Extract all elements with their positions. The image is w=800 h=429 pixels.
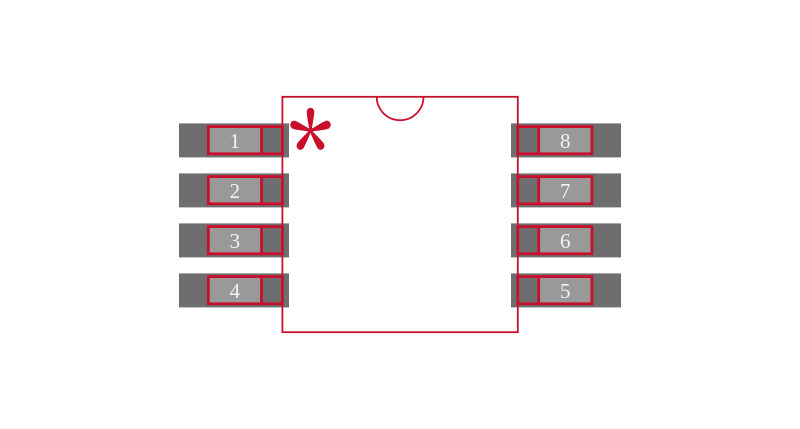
svg-text:1: 1	[230, 129, 241, 153]
svg-text:2: 2	[230, 179, 241, 203]
svg-text:3: 3	[230, 229, 241, 253]
svg-text:8: 8	[560, 129, 571, 153]
svg-text:5: 5	[560, 279, 571, 303]
svg-text:6: 6	[560, 229, 571, 253]
svg-text:7: 7	[560, 179, 571, 203]
svg-text:4: 4	[230, 279, 241, 303]
